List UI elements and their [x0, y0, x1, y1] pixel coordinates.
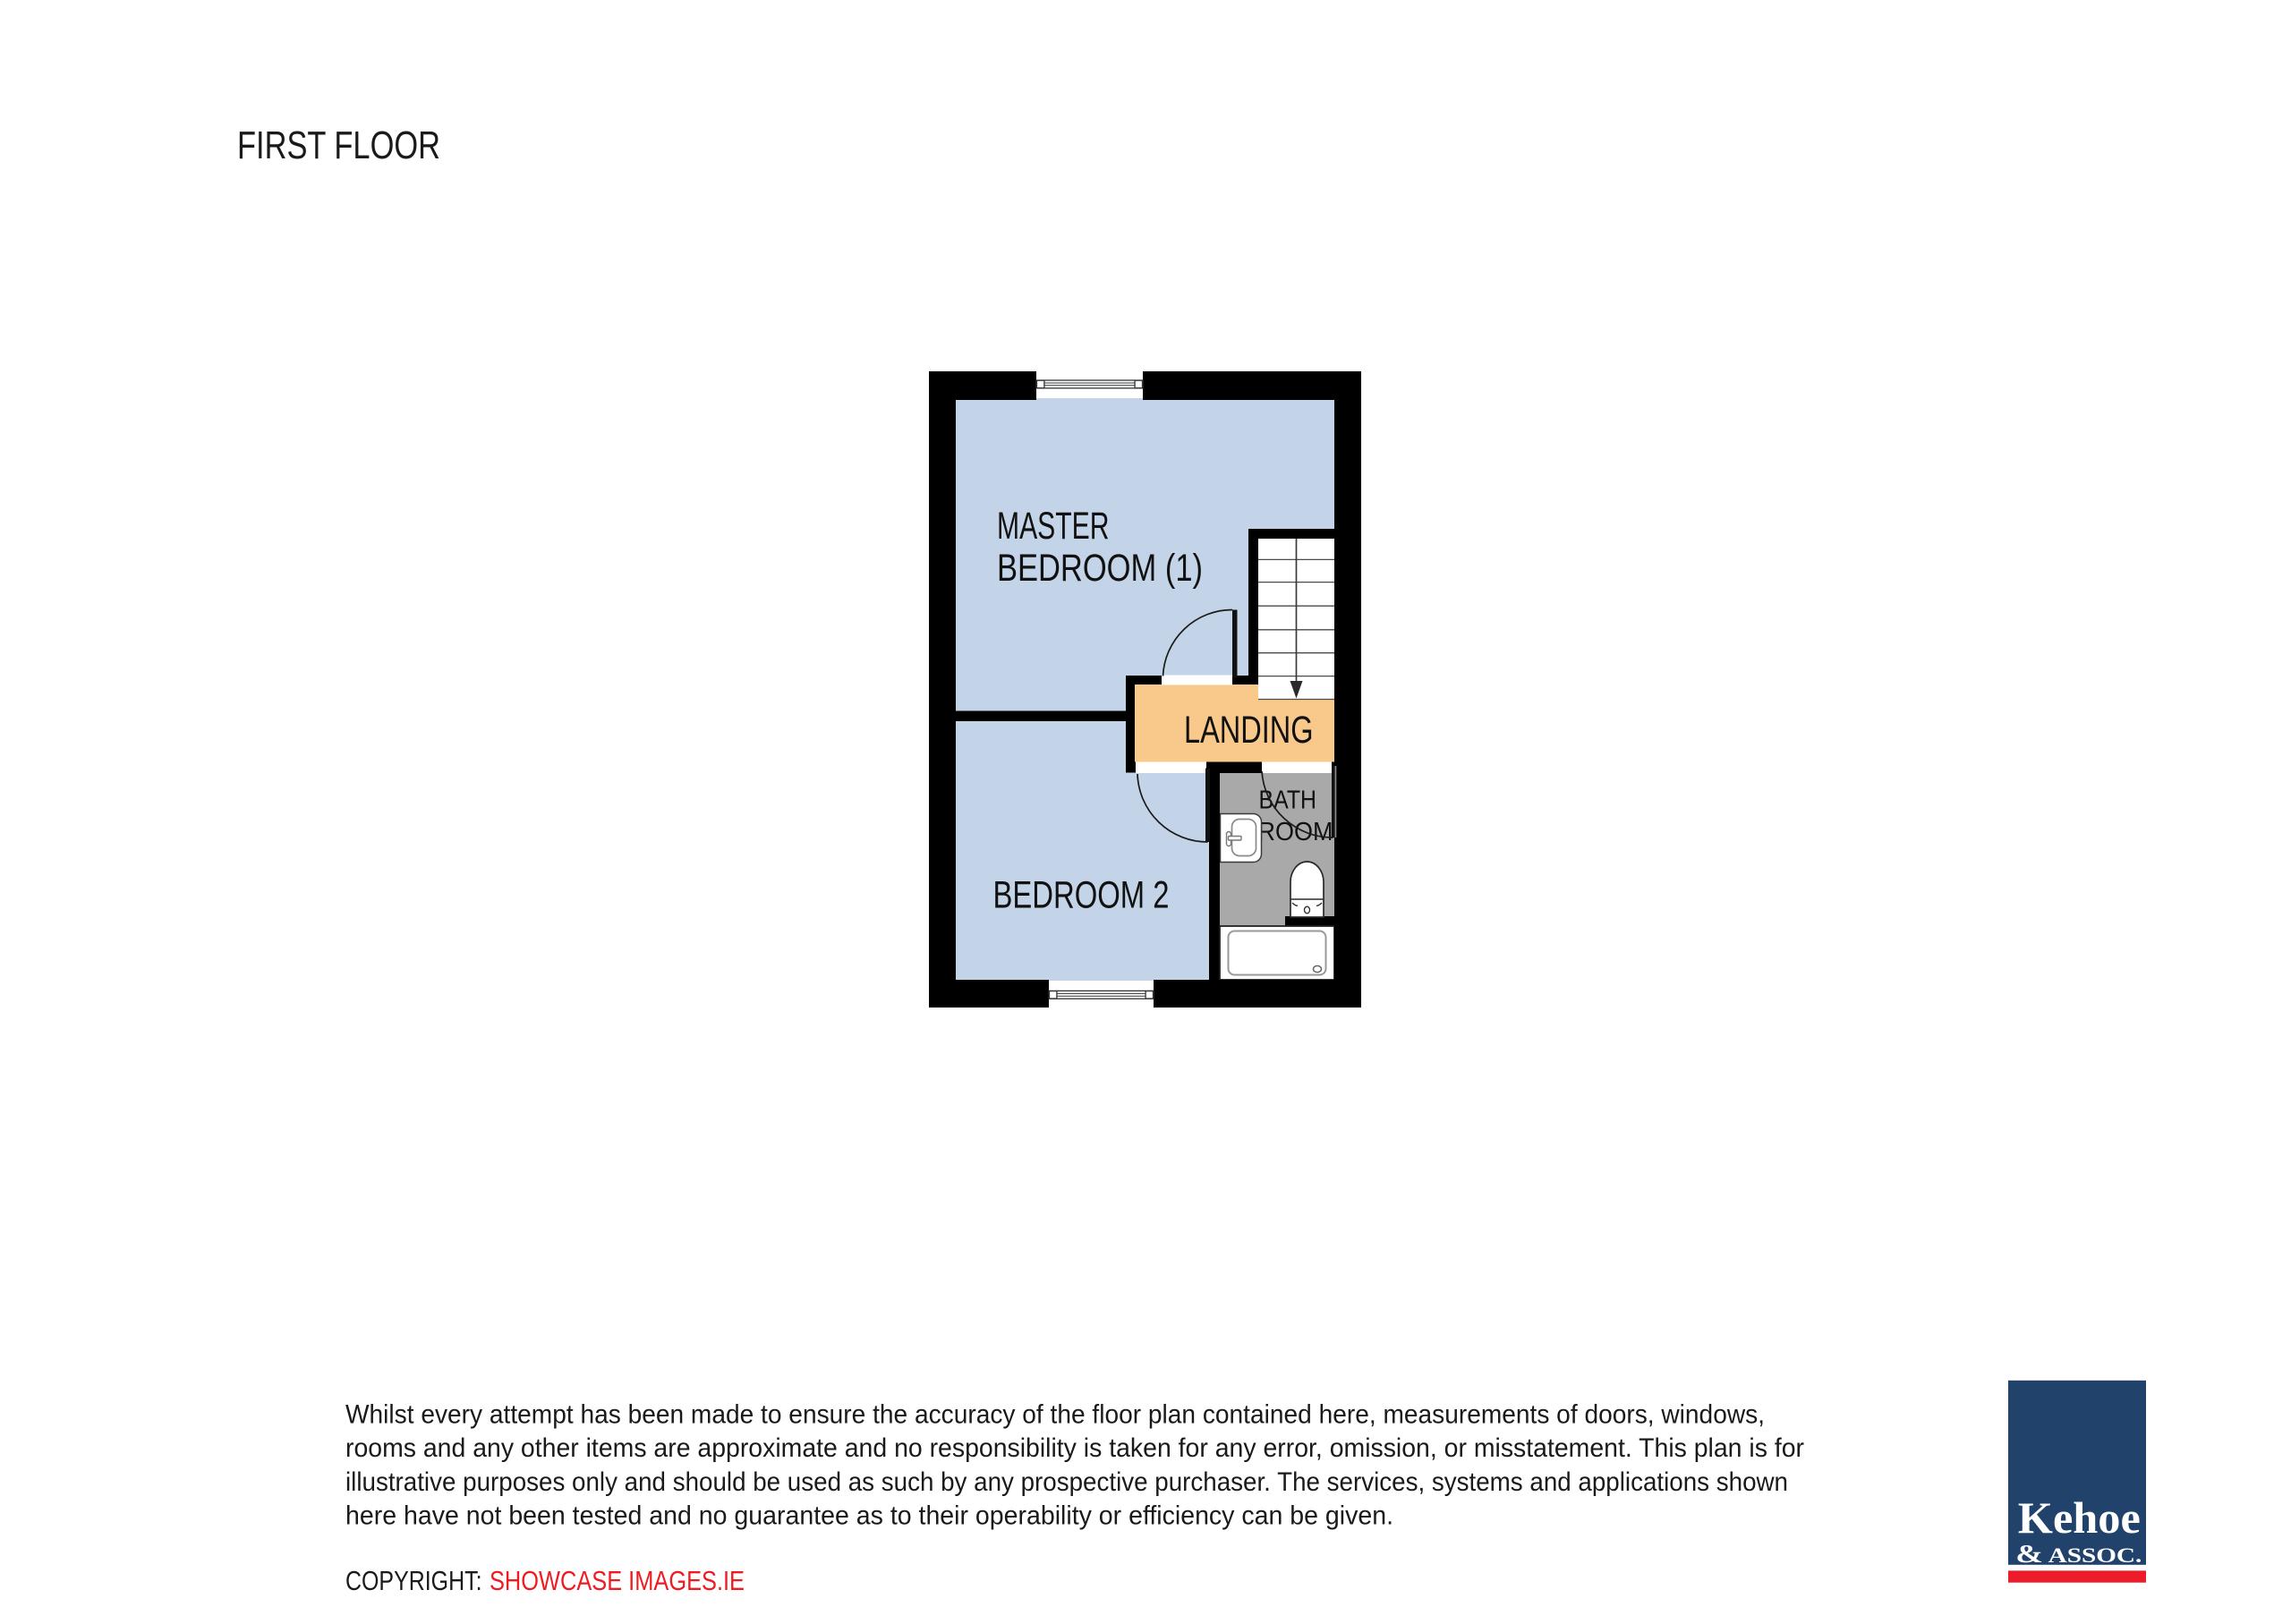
svg-text:COPYRIGHT:: COPYRIGHT: — [345, 1565, 482, 1596]
svg-text:BEDROOM (1): BEDROOM (1) — [997, 547, 1203, 590]
svg-text:MASTER: MASTER — [997, 505, 1110, 548]
svg-text:& ASSOC.: & ASSOC. — [2015, 1540, 2142, 1569]
svg-text:FIRST FLOOR: FIRST FLOOR — [237, 123, 440, 167]
svg-text:BEDROOM 2: BEDROOM 2 — [993, 874, 1170, 917]
svg-text:Whilst every attempt has been: Whilst every attempt has been made to en… — [345, 1400, 1765, 1430]
svg-text:illustrative purposes only and: illustrative purposes only and should be… — [345, 1467, 1788, 1497]
svg-text:SHOWCASE IMAGES.IE: SHOWCASE IMAGES.IE — [490, 1565, 745, 1596]
svg-text:LANDING: LANDING — [1184, 709, 1314, 752]
svg-text:BATH: BATH — [1259, 786, 1317, 815]
svg-text:rooms and any other items are: rooms and any other items are approximat… — [345, 1433, 1804, 1463]
svg-text:Kehoe: Kehoe — [2018, 1492, 2141, 1543]
svg-text:ROOM: ROOM — [1258, 818, 1333, 846]
svg-text:here have not been tested and: here have not been tested and no guarant… — [345, 1501, 1393, 1531]
